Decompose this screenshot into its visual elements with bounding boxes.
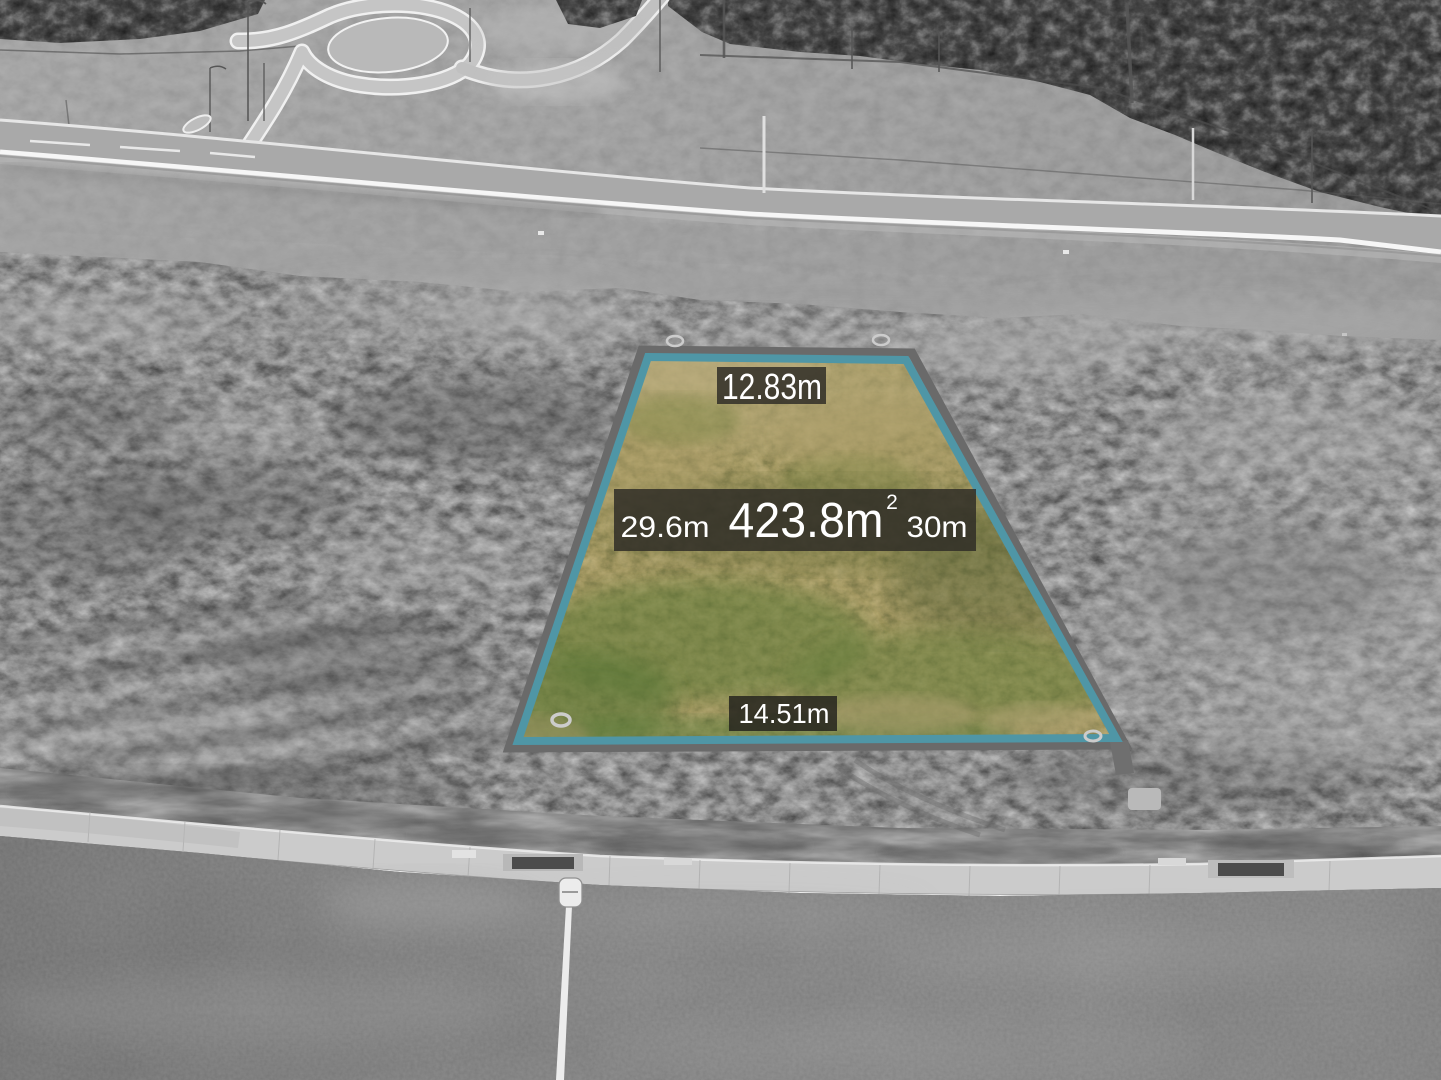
svg-text:2: 2 [886, 491, 898, 514]
svg-text:14.51m: 14.51m [739, 698, 830, 729]
svg-text:423.8m: 423.8m [729, 494, 884, 548]
svg-text:29.6m: 29.6m [621, 511, 710, 544]
svg-text:12.83m: 12.83m [722, 366, 822, 407]
svg-text:30m: 30m [907, 511, 968, 544]
